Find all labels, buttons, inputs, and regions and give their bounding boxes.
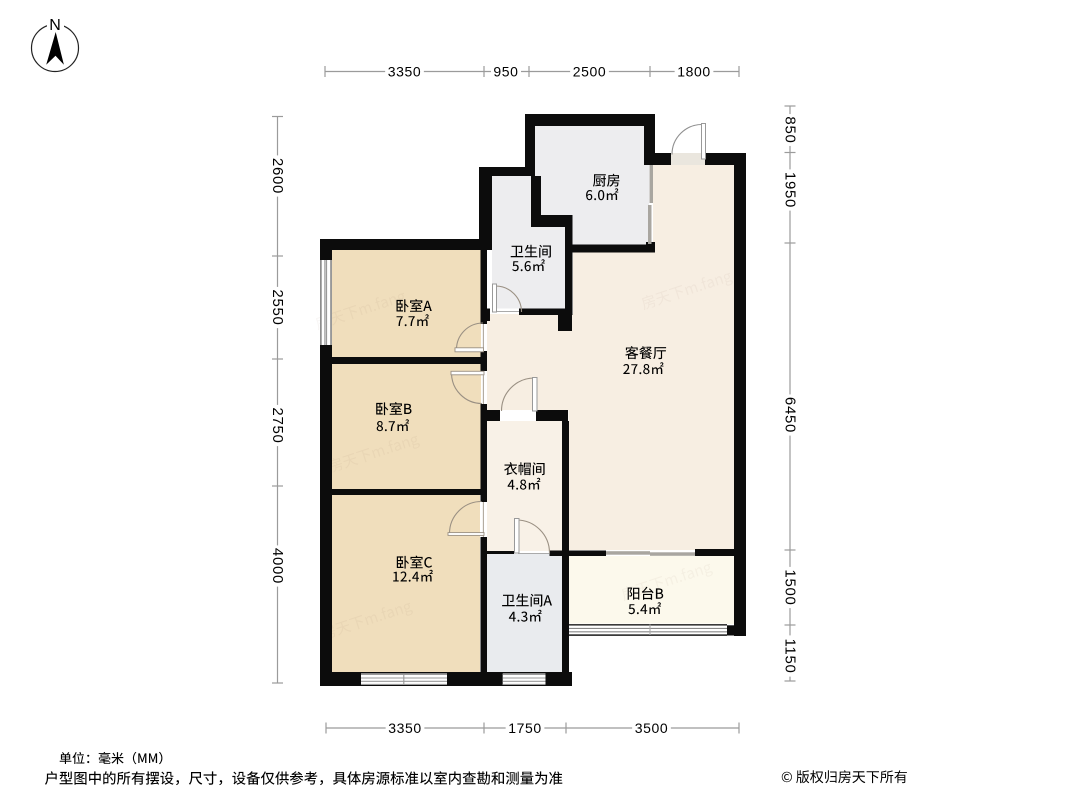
svg-text:3350: 3350: [388, 720, 422, 736]
svg-text:N: N: [49, 17, 61, 34]
svg-text:2600: 2600: [269, 158, 286, 194]
svg-text:2550: 2550: [269, 289, 286, 325]
svg-text:1800: 1800: [677, 64, 711, 80]
svg-text:1150: 1150: [782, 638, 799, 673]
svg-text:950: 950: [493, 64, 518, 80]
svg-text:1750: 1750: [508, 720, 542, 736]
svg-text:1500: 1500: [782, 569, 799, 605]
svg-text:3350: 3350: [388, 64, 422, 80]
svg-text:6450: 6450: [782, 397, 799, 433]
svg-text:1950: 1950: [782, 172, 799, 208]
svg-text:2500: 2500: [573, 64, 607, 80]
svg-text:2750: 2750: [269, 407, 286, 443]
svg-text:4000: 4000: [269, 548, 286, 584]
svg-text:3500: 3500: [635, 720, 669, 736]
svg-text:850: 850: [782, 116, 799, 143]
